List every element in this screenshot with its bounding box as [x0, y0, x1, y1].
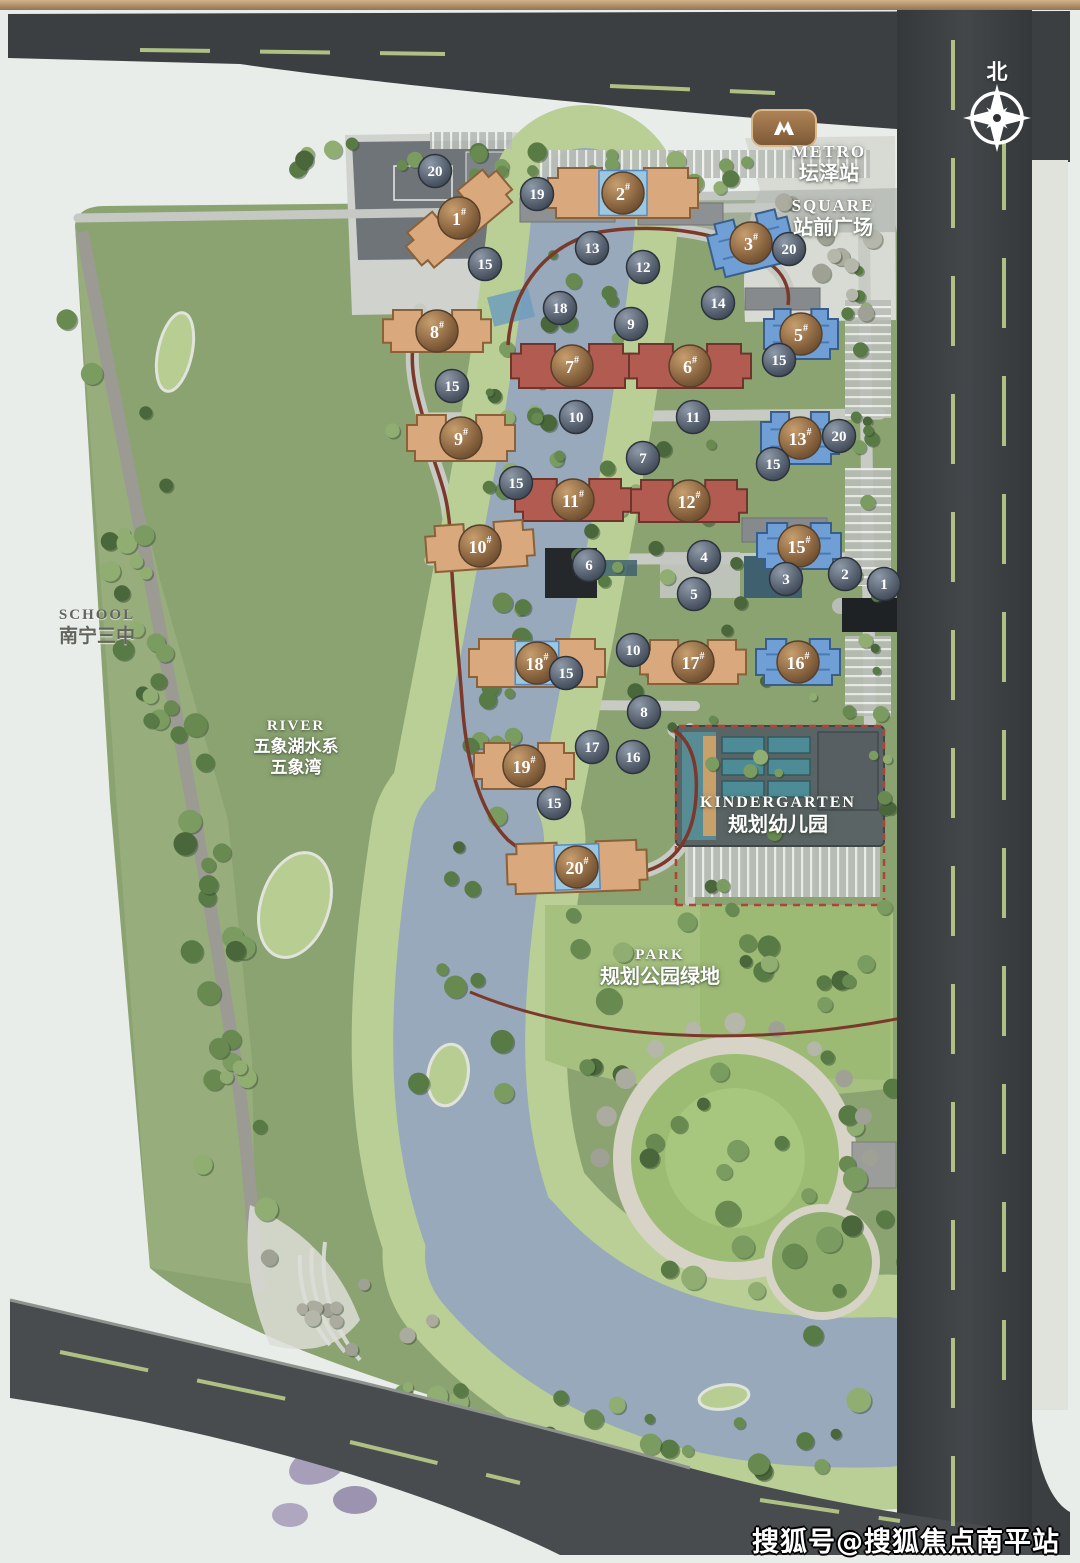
building-badge-19: 19#: [503, 745, 545, 787]
amenity-marker-17: 17: [576, 731, 609, 764]
svg-text:12: 12: [636, 260, 651, 276]
svg-text:11: 11: [686, 410, 700, 426]
svg-text:13: 13: [585, 241, 600, 257]
amenity-marker-5: 5: [678, 578, 711, 611]
building-16: 16#: [756, 639, 840, 685]
building-15: 15#: [757, 523, 841, 569]
site-plan-map: 1#2#3#5#7#6#8#9#13#11#12#10#15#18#17#16#…: [0, 0, 1080, 1563]
svg-text:3: 3: [782, 572, 790, 588]
frame-bottom: [0, 1550, 1080, 1563]
amenity-marker-20: 20: [419, 155, 452, 188]
building-12: 12#: [631, 480, 747, 522]
building-badge-2: 2#: [602, 172, 644, 214]
svg-text:16: 16: [626, 750, 642, 766]
amenity-marker-20: 20: [823, 420, 856, 453]
amenity-marker-10: 10: [560, 401, 593, 434]
amenity-marker-15: 15: [436, 370, 469, 403]
building-badge-1: 1#: [438, 197, 480, 239]
amenity-marker-8: 8: [628, 696, 661, 729]
building-badge-11: 11#: [552, 479, 594, 521]
amenity-marker-15: 15: [763, 344, 796, 377]
svg-text:14: 14: [711, 296, 727, 312]
amenity-marker-15: 15: [500, 467, 533, 500]
amenity-marker-14: 14: [702, 287, 735, 320]
building-18: 18#: [469, 639, 605, 687]
amenity-marker-6: 6: [573, 549, 606, 582]
amenity-marker-15: 15: [550, 657, 583, 690]
svg-text:1: 1: [880, 577, 888, 593]
amenity-marker-13: 13: [576, 232, 609, 265]
building-badge-10: 10#: [459, 525, 501, 567]
frame-right: [1066, 0, 1080, 1563]
building-badge-7: 7#: [551, 345, 593, 387]
building-8: 8#: [383, 310, 491, 352]
svg-text:10: 10: [626, 643, 641, 659]
building-badge-12: 12#: [668, 480, 710, 522]
svg-text:4: 4: [700, 550, 708, 566]
building-20: 20#: [506, 840, 648, 895]
svg-text:20: 20: [782, 242, 797, 258]
building-badge-6: 6#: [669, 345, 711, 387]
svg-text:15: 15: [445, 379, 460, 395]
svg-text:20: 20: [428, 164, 443, 180]
east-road: [897, 10, 1032, 1555]
frame-left: [0, 0, 13, 1563]
svg-text:15: 15: [766, 457, 781, 473]
svg-text:5: 5: [690, 587, 698, 603]
svg-text:15: 15: [478, 257, 493, 273]
svg-text:7: 7: [639, 451, 647, 467]
svg-text:6: 6: [585, 558, 593, 574]
north-label: 北: [987, 56, 1008, 86]
svg-text:15: 15: [559, 666, 574, 682]
amenity-marker-15: 15: [757, 448, 790, 481]
east-sidewalk: [1032, 160, 1068, 1410]
svg-text:18: 18: [553, 301, 568, 317]
amenity-marker-15: 15: [469, 248, 502, 281]
amenity-marker-18: 18: [544, 292, 577, 325]
amenity-marker-19: 19: [521, 178, 554, 211]
amenity-marker-16: 16: [617, 741, 650, 774]
amenity-marker-1: 1: [868, 568, 901, 601]
svg-text:20: 20: [832, 429, 847, 445]
building-19: 19#: [474, 743, 574, 789]
building-6: 6#: [629, 344, 751, 388]
amenity-marker-10: 10: [617, 634, 650, 667]
svg-text:15: 15: [547, 796, 562, 812]
building-badge-16: 16#: [777, 641, 819, 683]
amenity-marker-4: 4: [688, 541, 721, 574]
building-2: 2#: [548, 168, 698, 218]
building-badge-3: 3#: [730, 222, 772, 264]
building-7: 7#: [511, 344, 633, 388]
svg-text:9: 9: [627, 317, 635, 333]
amenity-marker-7: 7: [627, 442, 660, 475]
amenity-marker-3: 3: [770, 563, 803, 596]
svg-text:10: 10: [569, 410, 584, 426]
amenity-marker-12: 12: [627, 251, 660, 284]
site-plan-canvas: 1#2#3#5#7#6#8#9#13#11#12#10#15#18#17#16#…: [0, 0, 1080, 1563]
building-badge-20: 20#: [556, 846, 598, 888]
svg-text:15: 15: [772, 353, 787, 369]
svg-text:17: 17: [585, 740, 601, 756]
svg-text:8: 8: [640, 705, 648, 721]
amenity-marker-11: 11: [677, 401, 710, 434]
svg-text:2: 2: [841, 567, 849, 583]
building-badge-9: 9#: [440, 417, 482, 459]
building-badge-8: 8#: [416, 310, 458, 352]
amenity-marker-2: 2: [829, 558, 862, 591]
building-10: 10#: [425, 519, 536, 572]
building-17: 17#: [640, 640, 746, 684]
amenity-marker-20: 20: [773, 233, 806, 266]
metro-station-badge: [752, 110, 816, 146]
building-badge-15: 15#: [778, 525, 820, 567]
svg-text:19: 19: [530, 187, 545, 203]
amenity-marker-15: 15: [538, 787, 571, 820]
amenity-marker-9: 9: [615, 308, 648, 341]
svg-text:15: 15: [509, 476, 524, 492]
building-9: 9#: [407, 415, 515, 461]
building-badge-17: 17#: [672, 641, 714, 683]
frame-top: [0, 0, 1080, 10]
